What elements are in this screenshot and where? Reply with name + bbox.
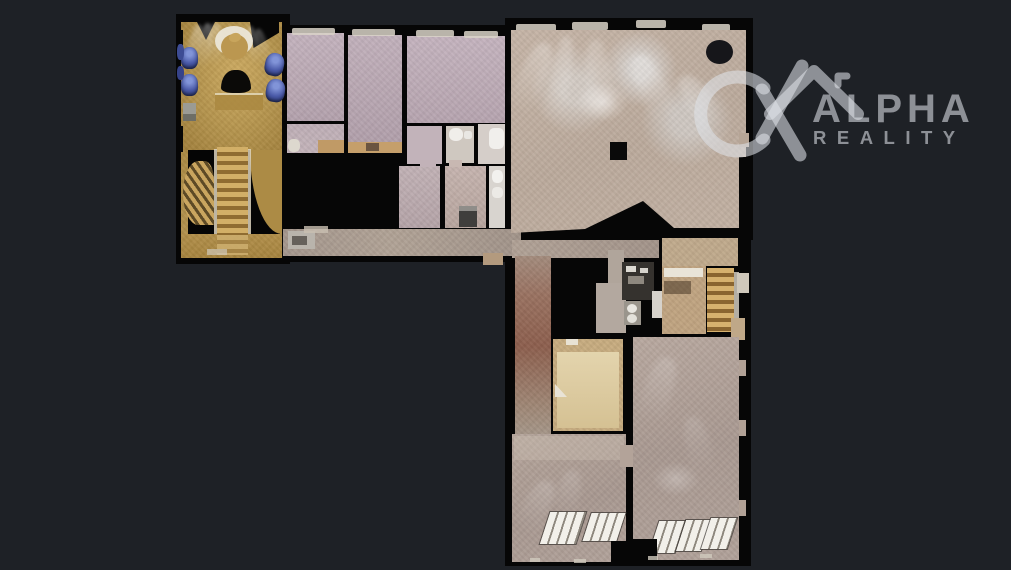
washer-dot-2	[627, 314, 637, 323]
sink-fixture-2	[492, 187, 503, 198]
window-sill-1	[292, 28, 335, 35]
ante-wood-floor	[318, 140, 344, 153]
classroom-left-notch	[611, 541, 626, 562]
yellow-room-rug	[557, 352, 619, 428]
study-desk-band	[664, 268, 703, 277]
room-b	[348, 35, 402, 144]
shelf-white-1	[626, 266, 636, 272]
right-edge-tab-3	[739, 500, 746, 516]
right-edge-tab-1	[739, 360, 746, 376]
floorplan	[0, 0, 1011, 570]
window-sill-3	[416, 30, 454, 37]
sink-fixture-1	[492, 170, 503, 183]
washer-dot-1	[627, 304, 637, 313]
bottom-tick-4	[700, 554, 712, 558]
screenshot-root: { "logo": { "brand_top": "ALPHA", "brand…	[0, 0, 1011, 570]
door-tab-1	[420, 160, 436, 167]
support-pillar	[610, 142, 627, 160]
great-edge-tab	[739, 133, 749, 147]
window-sill-4	[464, 31, 498, 38]
staircase-lower	[707, 268, 734, 332]
yellow-room-notch	[566, 339, 578, 345]
gray-cabinet	[183, 103, 196, 121]
bottom-tick-2	[574, 559, 586, 563]
bottom-tick-3	[648, 556, 658, 560]
stair-rail-right	[248, 149, 251, 234]
ante-white-item	[288, 139, 300, 152]
window-sill-7	[636, 20, 666, 28]
mid-room-left	[399, 166, 440, 228]
wc-toilet	[449, 128, 463, 141]
edge-bite-2	[176, 126, 183, 152]
corridor-clutter-dark	[292, 236, 307, 245]
room-b-mark	[366, 143, 379, 151]
shelf-gray	[628, 276, 644, 284]
study-smudge	[664, 281, 691, 294]
corridor-main	[283, 229, 521, 256]
blue-chair-part-1	[177, 44, 184, 60]
edge-piece-1	[737, 273, 749, 293]
dark-arch	[221, 70, 251, 93]
reception-desk	[215, 93, 263, 110]
floorplan-canvas: ALPHA REALITY	[0, 0, 1011, 570]
door-between-rooms	[620, 445, 634, 467]
bath-hallway	[407, 126, 442, 164]
round-table-dark	[706, 40, 733, 64]
great-light-blob	[576, 82, 628, 122]
red-corridor	[515, 256, 551, 436]
wc-sink	[464, 131, 472, 139]
bottom-tick-1	[530, 558, 540, 562]
room-c	[407, 36, 505, 123]
classroom-left-band	[514, 436, 624, 460]
window-sill-2	[352, 29, 395, 36]
door-tab-2	[449, 160, 462, 167]
window-sill-6	[572, 22, 608, 30]
lobby-white-bit	[207, 249, 227, 255]
corridor-tab-right	[483, 253, 503, 265]
boiler-unit	[459, 206, 477, 227]
right-edge-tab-2	[739, 420, 746, 436]
stair-rail-left	[214, 149, 217, 234]
tan-landing	[662, 238, 738, 266]
shelf-white-2	[640, 268, 648, 273]
blue-chair-part-2	[177, 66, 184, 80]
corridor-light-patch	[304, 226, 328, 233]
cr-light-blob	[652, 462, 700, 496]
room-a	[287, 33, 344, 121]
spiral-stair	[183, 161, 214, 225]
main-staircase	[217, 147, 248, 235]
bath-tub	[489, 128, 504, 149]
